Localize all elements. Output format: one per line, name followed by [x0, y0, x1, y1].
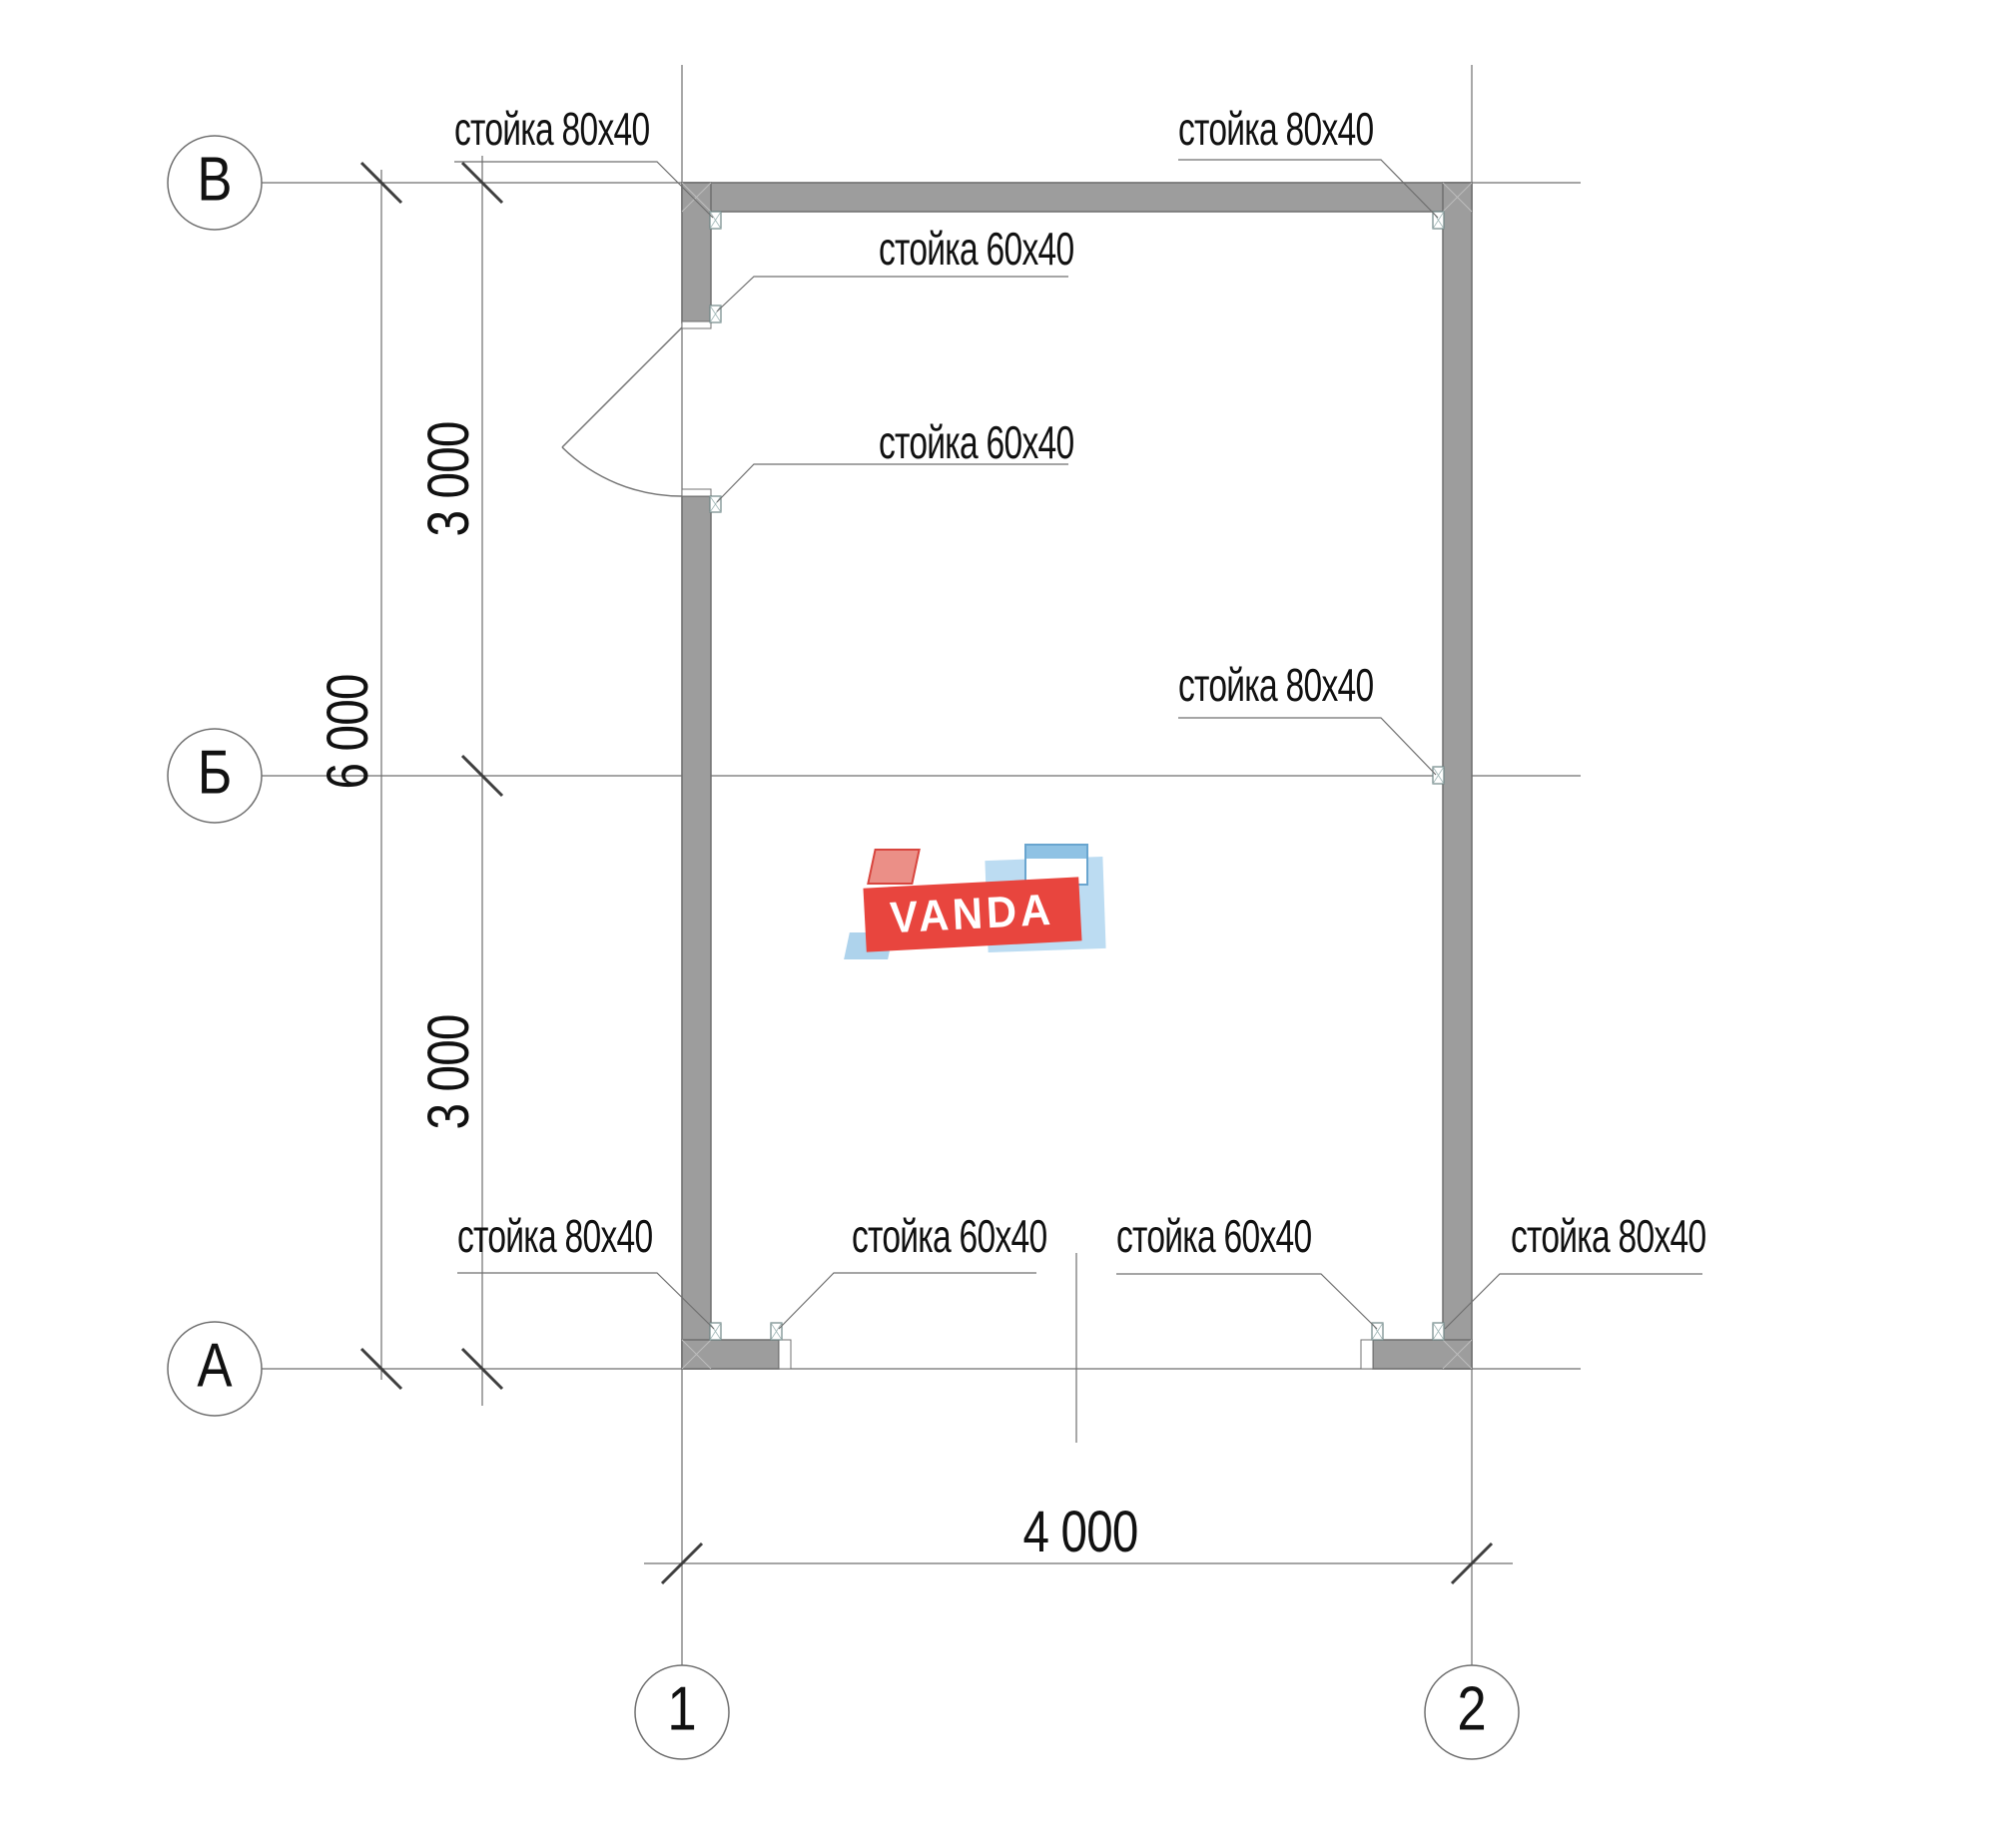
callout-bottom-left: стойка 60x40	[852, 1213, 1046, 1259]
post-right-mid	[1433, 767, 1444, 784]
dim-text-upper-segment: 3 000	[420, 422, 478, 537]
leader-right-mid	[1178, 718, 1436, 775]
post-door-lower	[710, 496, 721, 512]
leader-bottom-left	[779, 1273, 1036, 1329]
col-axis-label-2: 2	[1457, 1679, 1486, 1741]
floor-plan-drawing: VANDA В Б А 1 2 6 000 3 000 3 000 4 000 …	[0, 0, 1997, 1848]
door-swing	[562, 327, 682, 496]
leader-interior-upper	[717, 277, 1068, 311]
grid-lines	[262, 65, 1581, 1665]
leader-bottom-right	[1116, 1274, 1377, 1329]
door-jamb-bottom	[682, 489, 711, 496]
dim-text-lower-segment: 3 000	[420, 1015, 478, 1130]
brand-logo-left-cube	[867, 849, 921, 885]
post-gate-left	[771, 1323, 782, 1340]
gate-jamb-right	[1361, 1340, 1373, 1369]
callout-top-left: стойка 80x40	[454, 106, 649, 152]
leader-bottom-far-right	[1445, 1274, 1702, 1329]
door-leaf	[562, 327, 682, 447]
post-bottom-corner-right	[1433, 1323, 1444, 1340]
door-arc	[562, 447, 682, 496]
callout-interior-lower: стойка 60x40	[879, 419, 1073, 465]
brand-logo-right-cube-top	[1026, 846, 1086, 859]
wall-left-upper	[682, 183, 711, 322]
post-bottom-corner-left	[710, 1323, 721, 1340]
callout-interior-upper: стойка 60x40	[879, 226, 1073, 272]
col-axis-label-1: 1	[667, 1679, 696, 1741]
wall-right	[1443, 183, 1472, 1369]
row-axis-label-A: А	[197, 1336, 232, 1398]
callout-bottom-far-left: стойка 80x40	[457, 1213, 652, 1259]
post-door-upper	[710, 306, 721, 322]
brand-logo-banner: VANDA	[863, 877, 1081, 951]
wall-top	[682, 183, 1472, 212]
row-axis-label-B: Б	[198, 743, 233, 805]
dim-text-width: 4 000	[1023, 1504, 1138, 1561]
leader-top-left	[454, 162, 713, 218]
callout-leaders	[454, 160, 1702, 1329]
dimension-lines	[381, 156, 1513, 1563]
wall-left-lower	[682, 496, 711, 1369]
post-top-left	[710, 212, 721, 229]
brand-name: VANDA	[890, 889, 1056, 941]
gate-jamb-left	[779, 1340, 791, 1369]
grid-bubbles	[168, 136, 1519, 1759]
leader-interior-lower	[717, 464, 1068, 502]
door-jamb-top	[682, 321, 711, 328]
leader-bottom-far-left	[457, 1273, 714, 1329]
dimension-ticks	[361, 163, 1492, 1583]
callout-bottom-right: стойка 60x40	[1116, 1213, 1311, 1259]
row-axis-label-V: В	[197, 150, 232, 212]
callout-top-right: стойка 80x40	[1178, 106, 1373, 152]
callout-right-mid: стойка 80x40	[1178, 662, 1373, 708]
dim-text-total-height: 6 000	[320, 675, 377, 790]
callout-bottom-far-right: стойка 80x40	[1511, 1213, 1705, 1259]
